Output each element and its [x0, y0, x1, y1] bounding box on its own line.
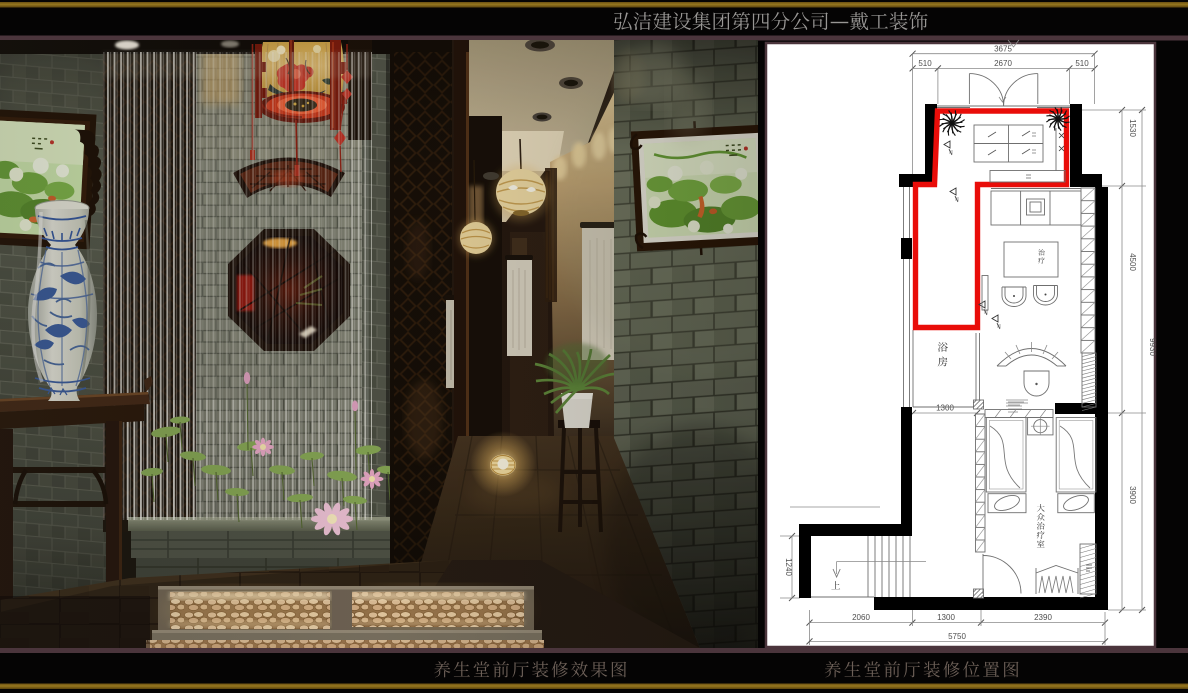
svg-text:2390: 2390 [1034, 613, 1052, 622]
svg-text:1300: 1300 [937, 613, 955, 622]
svg-text:3675: 3675 [994, 45, 1012, 54]
svg-text:9930: 9930 [1148, 338, 1157, 356]
svg-text:510: 510 [918, 59, 932, 68]
svg-text:1300: 1300 [936, 404, 954, 413]
svg-text:2670: 2670 [994, 59, 1012, 68]
svg-text:5750: 5750 [948, 632, 966, 641]
svg-text:1240: 1240 [784, 558, 793, 576]
svg-text:3900: 3900 [1128, 486, 1137, 504]
svg-text:510: 510 [1075, 59, 1089, 68]
svg-text:4500: 4500 [1128, 253, 1137, 271]
svg-text:2060: 2060 [852, 613, 870, 622]
svg-text:1530: 1530 [1128, 119, 1137, 137]
